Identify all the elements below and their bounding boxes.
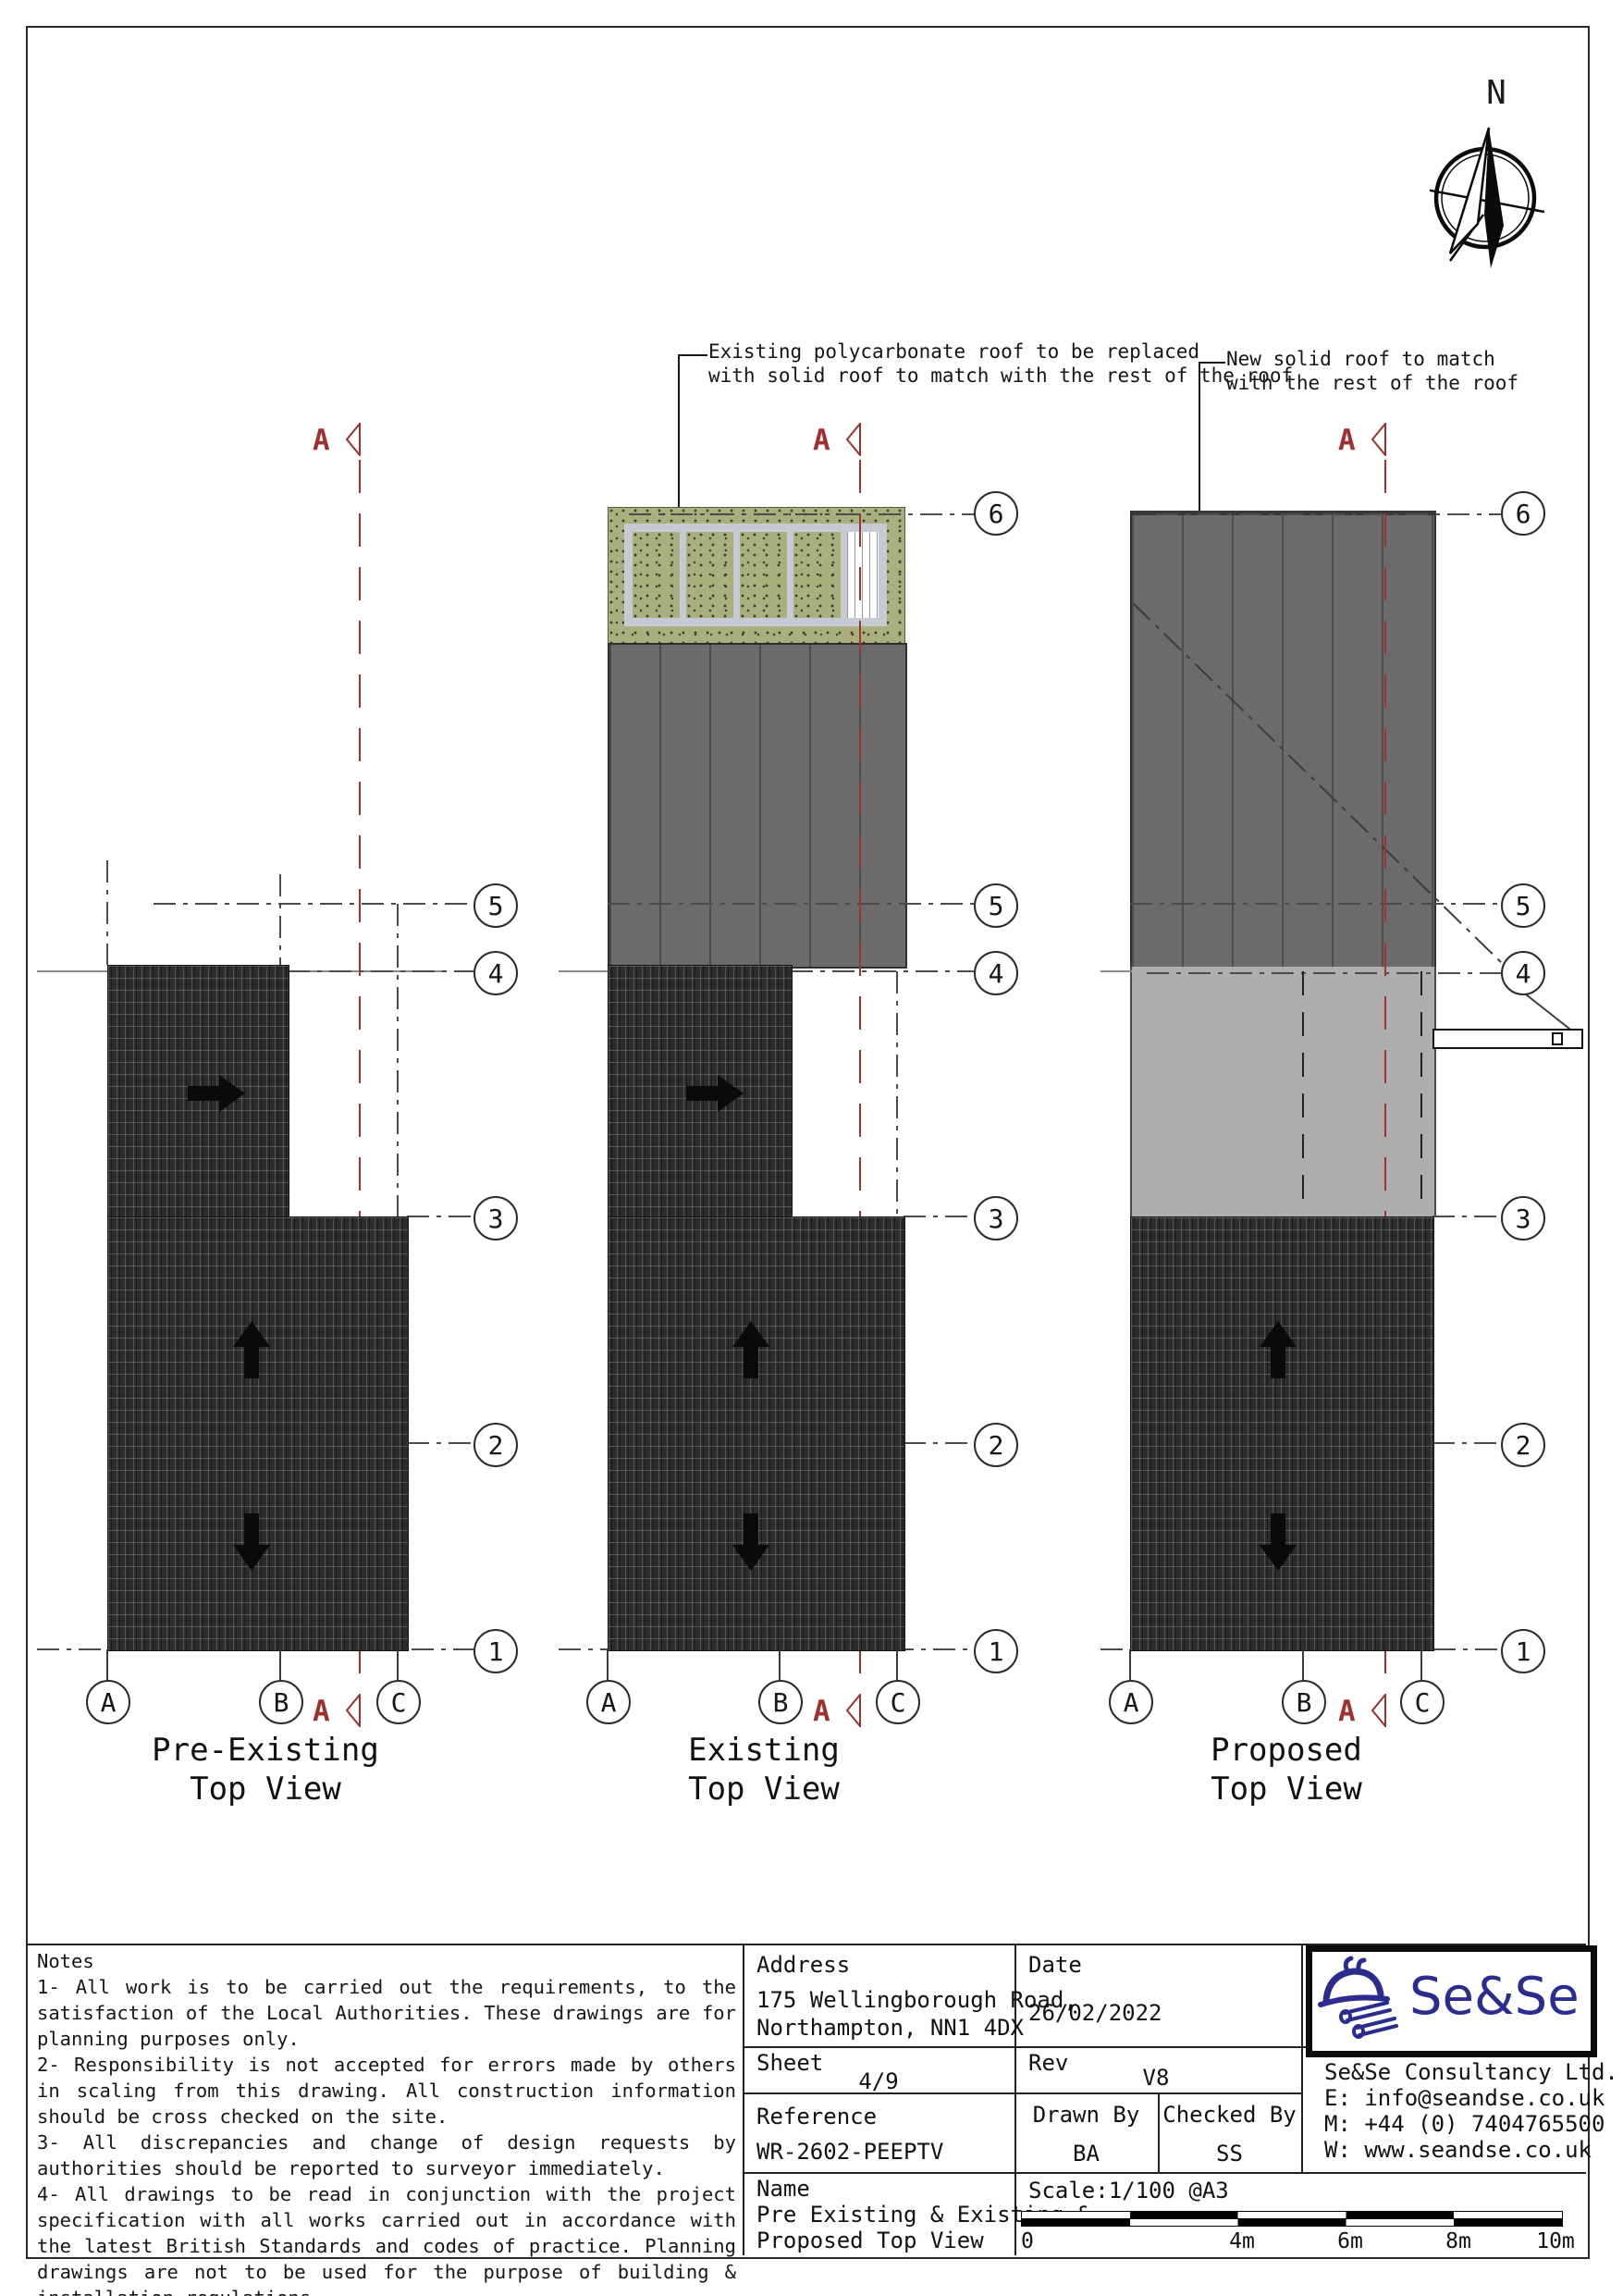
grid-line-4 bbox=[288, 970, 473, 972]
roof-pane bbox=[740, 532, 787, 618]
arrow-down-icon bbox=[233, 1513, 270, 1571]
section-marker-icon bbox=[345, 1694, 361, 1727]
grid-bubble-4: 4 bbox=[1501, 951, 1545, 995]
section-marker-icon bbox=[1371, 1694, 1386, 1727]
scale-bar bbox=[1021, 2211, 1563, 2227]
grid-drop-line bbox=[607, 1649, 609, 1680]
grid-bubble-A: A bbox=[586, 1680, 631, 1724]
scale-tick: 8m bbox=[1431, 2229, 1486, 2253]
roof-pane-open bbox=[847, 532, 879, 618]
note-item: 4- All drawings to be read in conjunctio… bbox=[37, 2181, 736, 2296]
grid-line-5 bbox=[608, 903, 974, 905]
section-marker-label: A bbox=[1338, 1695, 1356, 1728]
arrow-down-icon bbox=[732, 1513, 769, 1571]
company-logo-icon bbox=[1317, 1954, 1402, 2039]
grid-line-2 bbox=[904, 1442, 974, 1444]
company-mobile: M: +44 (0) 7404765500 bbox=[1324, 2111, 1605, 2137]
company-email: E: info@seandse.co.uk bbox=[1324, 2085, 1605, 2111]
grid-bubble-6: 6 bbox=[974, 491, 1018, 536]
leader-line bbox=[678, 354, 707, 356]
grid-bubble-C: C bbox=[876, 1680, 920, 1724]
grid-line-2 bbox=[1432, 1442, 1501, 1444]
grid-bubble-3: 3 bbox=[473, 1196, 518, 1241]
name-line2: Proposed Top View bbox=[756, 2228, 984, 2253]
drawn-by-label: Drawn By bbox=[1014, 2102, 1158, 2128]
company-logo-text: Se&Se bbox=[1409, 1967, 1580, 2027]
grid-line-2 bbox=[407, 1442, 473, 1444]
view-title-pre-existing: Pre-Existing bbox=[117, 1732, 413, 1769]
grid-line-3 bbox=[407, 1216, 473, 1217]
grid-bubble-4: 4 bbox=[473, 951, 518, 995]
grid-bubble-A: A bbox=[1109, 1680, 1153, 1724]
existing-roof-window-frame bbox=[624, 524, 887, 626]
section-marker-icon bbox=[345, 423, 361, 456]
grid-line-5 bbox=[154, 903, 473, 905]
drawing-sheet: N Existing polycarbonate roof to be repl… bbox=[0, 0, 1623, 2296]
scale-tick: 0 bbox=[1021, 2229, 1034, 2253]
leader-line bbox=[1199, 362, 1225, 364]
grid-drop-line bbox=[896, 1649, 898, 1680]
arrow-right-icon bbox=[686, 1075, 744, 1112]
grid-drop-line bbox=[779, 1649, 781, 1680]
grid-bubble-B: B bbox=[259, 1680, 303, 1724]
grid-bubble-B: B bbox=[1282, 1680, 1326, 1724]
scale-label: Scale:1/100 @A3 bbox=[1028, 2178, 1229, 2203]
grid-line-3 bbox=[904, 1216, 974, 1217]
section-marker-label: A bbox=[813, 424, 830, 457]
grid-bubble-A: A bbox=[86, 1680, 130, 1724]
grid-bubble-1: 1 bbox=[974, 1629, 1018, 1673]
proposed-building-lower bbox=[1130, 1216, 1434, 1651]
note-item: 1- All work is to be carried out the req… bbox=[37, 1974, 736, 2052]
rev-label: Rev bbox=[1028, 2050, 1068, 2076]
grid-line-vertical bbox=[106, 860, 108, 965]
grid-bubble-2: 2 bbox=[1501, 1423, 1545, 1467]
address-label: Address bbox=[756, 1952, 850, 1978]
grid-line-vertical bbox=[896, 971, 898, 1216]
grid-bubble-5: 5 bbox=[1501, 883, 1545, 928]
proposed-side-channel-fitting bbox=[1552, 1032, 1563, 1045]
annotation-new-roof-line1: New solid roof to match bbox=[1226, 348, 1495, 371]
arrow-right-icon bbox=[188, 1075, 245, 1112]
grid-bubble-1: 1 bbox=[1501, 1629, 1545, 1673]
section-marker-label: A bbox=[313, 1695, 330, 1728]
grid-line-vertical bbox=[397, 904, 399, 1216]
grid-drop-line bbox=[1129, 1649, 1131, 1680]
pre-existing-building-lower bbox=[107, 1216, 409, 1651]
grid-bubble-3: 3 bbox=[974, 1196, 1018, 1241]
grid-drop-line bbox=[397, 1649, 399, 1680]
reference-value: WR-2602-PEEPTV bbox=[756, 2139, 943, 2165]
view-subtitle-proposed: Top View bbox=[1138, 1771, 1434, 1808]
roof-pane bbox=[793, 532, 841, 618]
arrow-up-icon bbox=[233, 1321, 270, 1378]
titleblock-border bbox=[743, 2172, 1586, 2174]
grid-bubble-3: 3 bbox=[1501, 1196, 1545, 1241]
annotation-polycarbonate-line1: Existing polycarbonate roof to be replac… bbox=[708, 340, 1199, 364]
reference-label: Reference bbox=[756, 2104, 877, 2129]
sheet-label: Sheet bbox=[756, 2050, 823, 2076]
annotation-new-roof-line2: with the rest of the roof bbox=[1226, 372, 1518, 395]
checked-by-value: SS bbox=[1158, 2141, 1301, 2166]
name-label: Name bbox=[756, 2176, 810, 2202]
section-marker-label: A bbox=[1338, 424, 1356, 457]
arrow-up-icon bbox=[732, 1321, 769, 1378]
leader-line bbox=[1199, 362, 1200, 527]
roof-pane bbox=[633, 532, 680, 618]
grid-drop-line bbox=[279, 1649, 281, 1680]
grid-drop-line bbox=[1420, 1649, 1422, 1680]
company-name: Se&Se Consultancy Ltd. bbox=[1324, 2059, 1618, 2085]
notes-block: Notes 1- All work is to be carried out t… bbox=[37, 1948, 736, 2296]
grid-bubble-4: 4 bbox=[974, 951, 1018, 995]
grid-bubble-C: C bbox=[376, 1680, 421, 1724]
section-marker-icon bbox=[845, 1694, 861, 1727]
annotation-polycarbonate-line2: with solid roof to match with the rest o… bbox=[708, 364, 1293, 388]
view-title-existing: Existing bbox=[616, 1732, 912, 1769]
section-marker-label: A bbox=[313, 424, 330, 457]
grid-drop-line bbox=[106, 1649, 108, 1680]
existing-solid-roof bbox=[608, 643, 907, 969]
grid-line-6 bbox=[629, 513, 974, 515]
section-marker-icon bbox=[845, 423, 861, 456]
roof-pane bbox=[686, 532, 733, 618]
grid-bubble-5: 5 bbox=[473, 883, 518, 928]
leader-line bbox=[678, 354, 680, 518]
grid-bubble-2: 2 bbox=[473, 1423, 518, 1467]
view-subtitle-pre-existing: Top View bbox=[117, 1771, 413, 1808]
view-title-proposed: Proposed bbox=[1138, 1732, 1434, 1769]
scale-bar-row bbox=[1021, 2211, 1563, 2219]
note-item: 3- All discrepancies and change of desig… bbox=[37, 2129, 736, 2181]
grid-line-3 bbox=[1432, 1216, 1501, 1217]
grid-line-6 bbox=[1156, 513, 1501, 515]
grid-line-4 bbox=[791, 970, 974, 972]
scale-tick: 6m bbox=[1322, 2229, 1378, 2253]
grid-bubble-C: C bbox=[1400, 1680, 1445, 1724]
section-marker-icon bbox=[1371, 423, 1386, 456]
grid-drop-line bbox=[1302, 1649, 1304, 1680]
titleblock-border bbox=[743, 2092, 1301, 2094]
grid-line-vertical bbox=[279, 874, 281, 971]
titleblock-border bbox=[743, 1944, 744, 2255]
existing-building-lower bbox=[608, 1216, 905, 1651]
address-line2: Northampton, NN1 4DX bbox=[756, 2015, 1024, 2041]
grid-bubble-1: 1 bbox=[473, 1629, 518, 1673]
company-web: W: www.seandse.co.uk bbox=[1324, 2137, 1592, 2163]
scale-bar-row bbox=[1021, 2219, 1563, 2227]
notes-title: Notes bbox=[37, 1948, 736, 1974]
grid-line-4-solid bbox=[559, 970, 608, 972]
arrow-up-icon bbox=[1260, 1321, 1297, 1378]
date-label: Date bbox=[1028, 1952, 1082, 1978]
grid-bubble-2: 2 bbox=[974, 1423, 1018, 1467]
north-compass-icon bbox=[1430, 104, 1544, 279]
scale-tick: 10m bbox=[1523, 2229, 1588, 2253]
sheet-value: 4/9 bbox=[832, 2068, 925, 2094]
arrow-down-icon bbox=[1260, 1513, 1297, 1571]
note-item: 2- Responsibility is not accepted for er… bbox=[37, 2052, 736, 2129]
rev-value: V8 bbox=[1110, 2065, 1202, 2091]
grid-bubble-5: 5 bbox=[974, 883, 1018, 928]
view-subtitle-existing: Top View bbox=[616, 1771, 912, 1808]
grid-bubble-B: B bbox=[758, 1680, 803, 1724]
titleblock-border bbox=[1301, 1944, 1303, 2172]
grid-bubble-6: 6 bbox=[1501, 491, 1545, 536]
section-marker-label: A bbox=[813, 1695, 830, 1728]
date-value: 26/02/2022 bbox=[1028, 2000, 1162, 2026]
checked-by-label: Checked By bbox=[1158, 2102, 1301, 2128]
scale-tick: 4m bbox=[1214, 2229, 1270, 2253]
drawn-by-value: BA bbox=[1014, 2141, 1158, 2166]
